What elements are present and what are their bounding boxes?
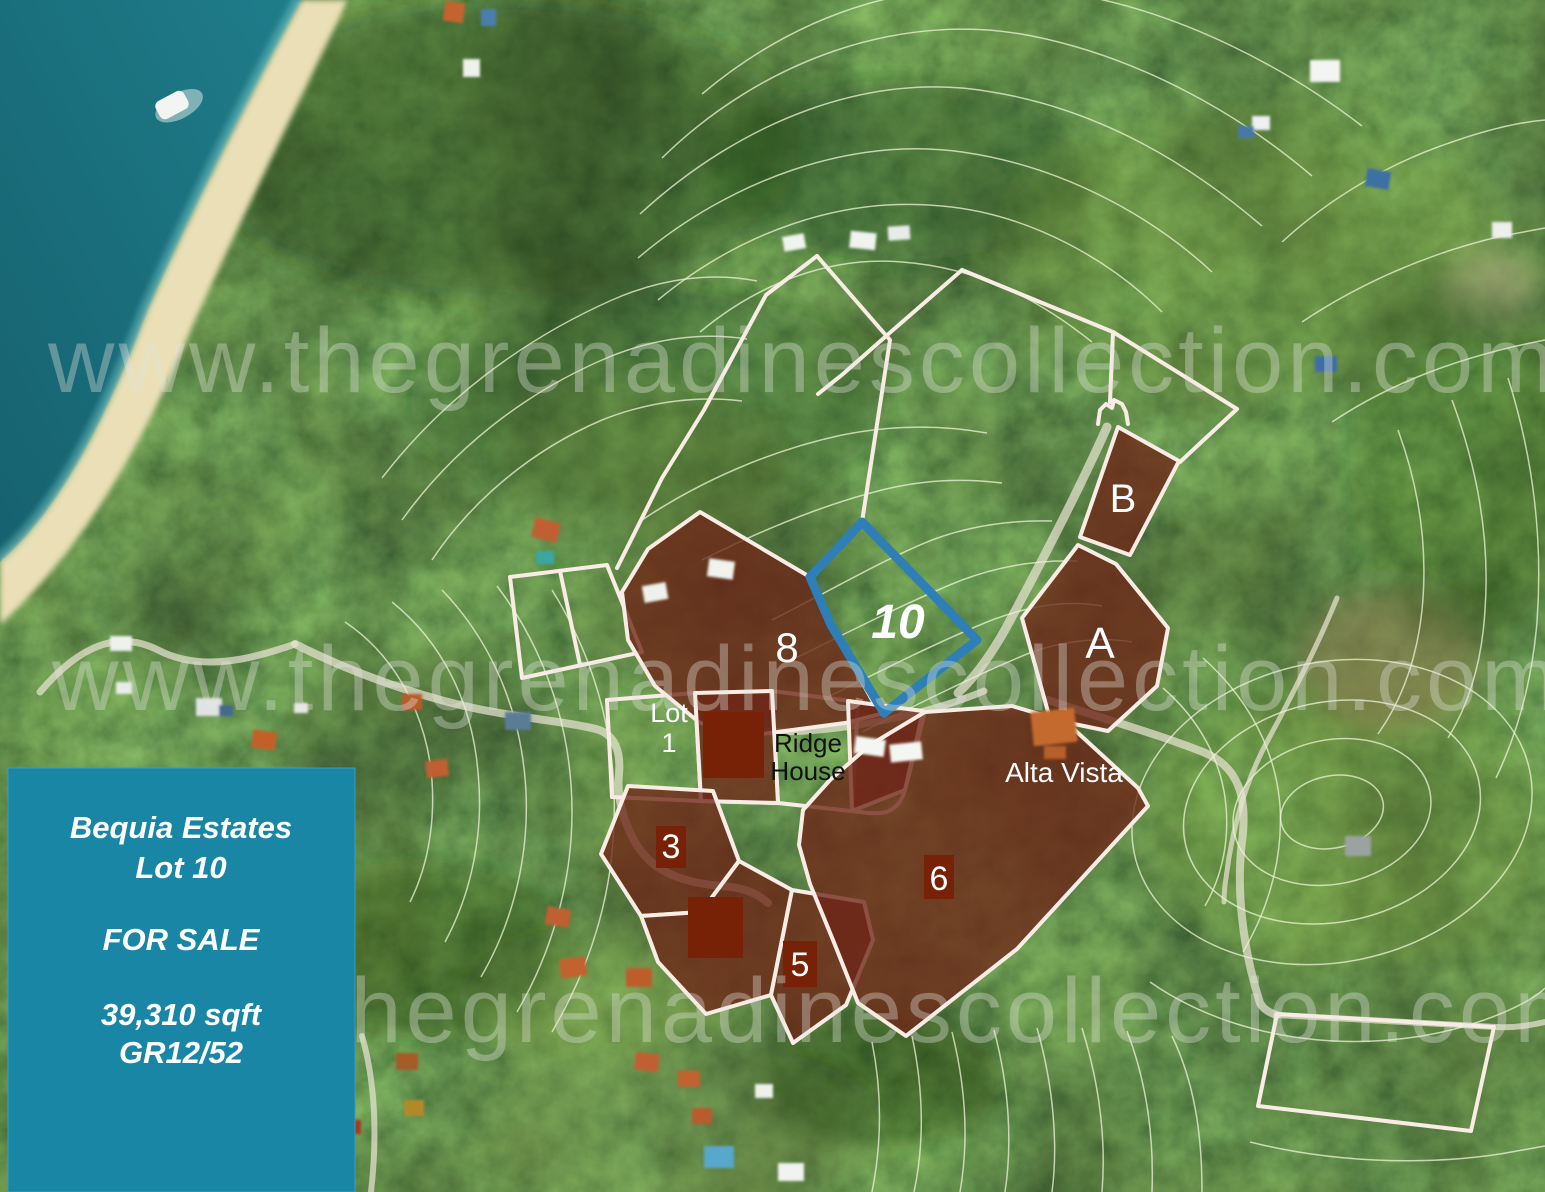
lot-5-label: 5 (791, 946, 810, 984)
lot-8-label: 8 (775, 624, 798, 671)
lot-1-label-line1: Lot (650, 698, 688, 728)
info-panel-title-line2: Lot 10 (135, 850, 226, 885)
info-panel-status: FOR SALE (103, 922, 261, 957)
alta-vista-label: Alta Vista (1005, 757, 1123, 788)
lot-10-label: 10 (871, 596, 925, 649)
watermark-row-1: www.thegrenadinescollection.com (47, 310, 1545, 412)
info-panel-area: 39,310 sqft (101, 997, 263, 1032)
info-panel-reference: GR12/52 (119, 1035, 243, 1070)
lot-3-label: 3 (662, 828, 681, 866)
lot-B-label: B (1110, 477, 1137, 521)
info-panel: Bequia Estates Lot 10 FOR SALE 39,310 sq… (8, 768, 355, 1192)
map-canvas: www.thegrenadinescollection.com www.theg… (0, 0, 1545, 1192)
satellite-lot-map: www.thegrenadinescollection.com www.theg… (0, 0, 1545, 1192)
building-square-lot4 (688, 897, 743, 958)
lot-6-label: 6 (930, 860, 949, 898)
info-panel-title-line1: Bequia Estates (70, 810, 292, 845)
lot-1-label-line2: 1 (661, 728, 676, 758)
ridge-house-label-line2: House (770, 756, 845, 786)
ridge-house-label-line1: Ridge (774, 728, 842, 758)
lot-A-label: A (1085, 619, 1115, 668)
